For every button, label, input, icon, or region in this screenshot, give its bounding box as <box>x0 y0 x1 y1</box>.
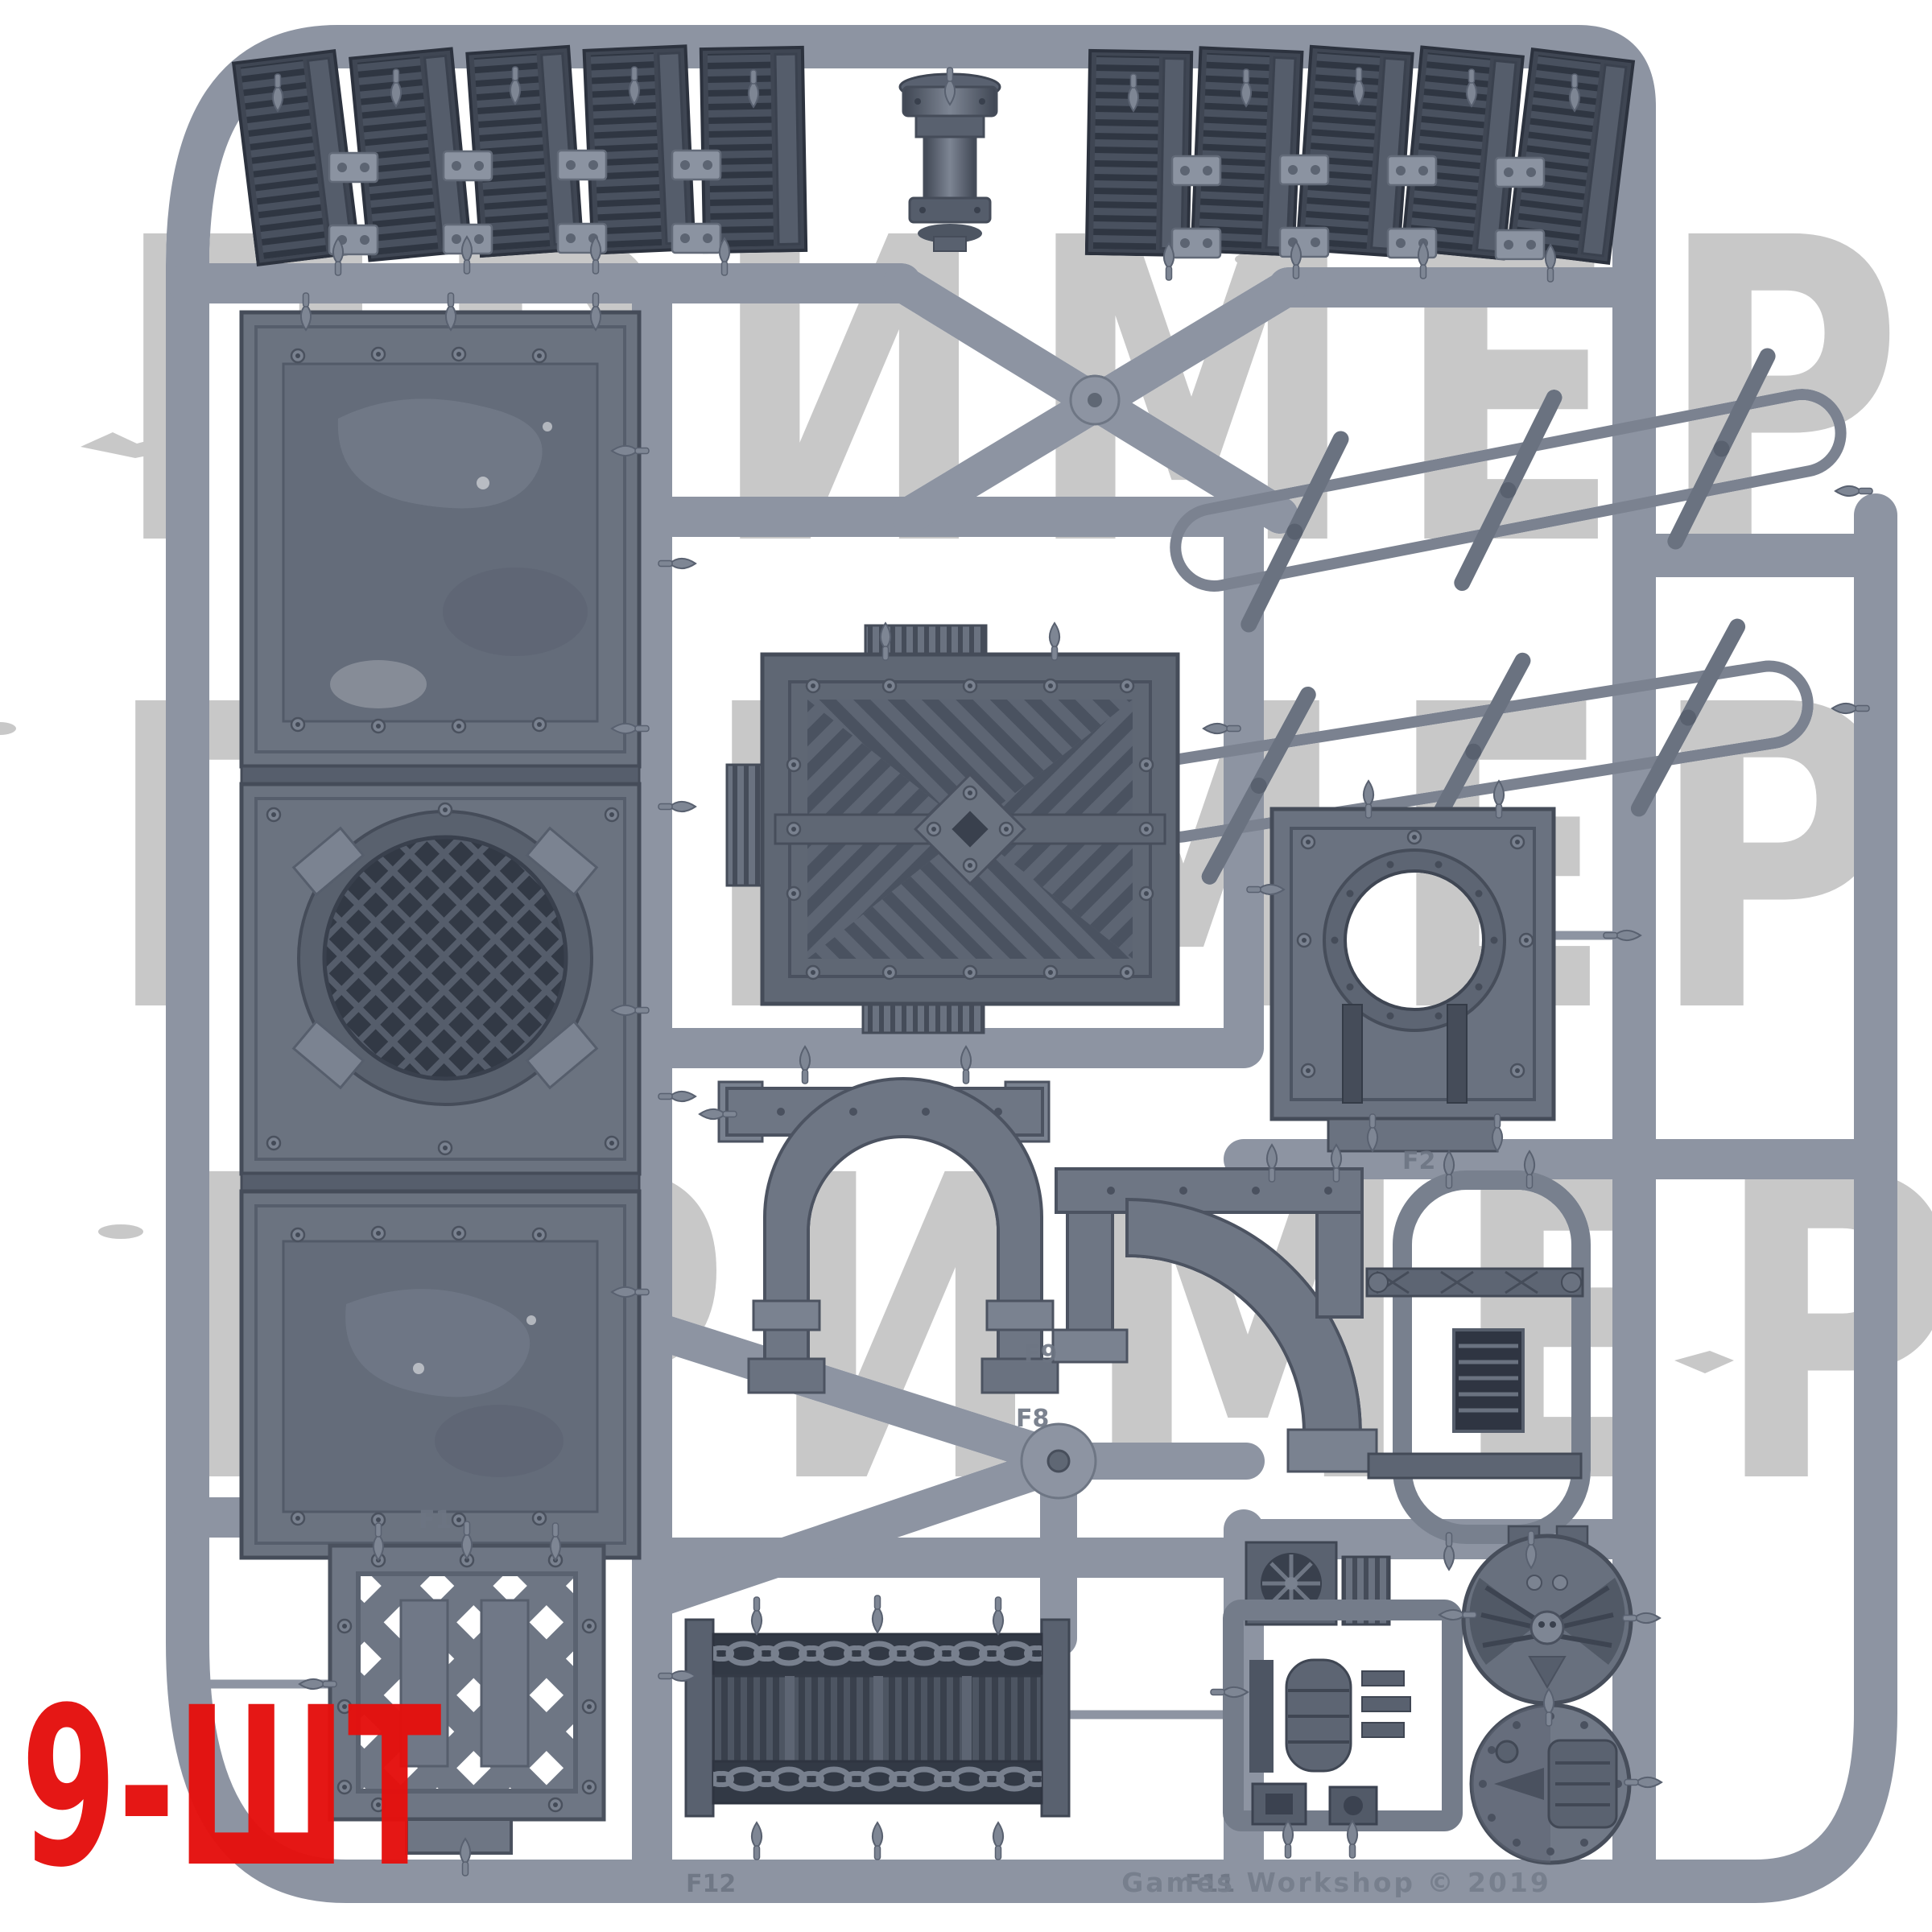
quantity-label: 9-ШТ <box>21 1679 443 1898</box>
product-photo: F1 F2 F8 F9 F11 F12 Games Workshop © 201… <box>0 0 1932 1932</box>
watermark-grunge-specks <box>0 0 1932 1932</box>
